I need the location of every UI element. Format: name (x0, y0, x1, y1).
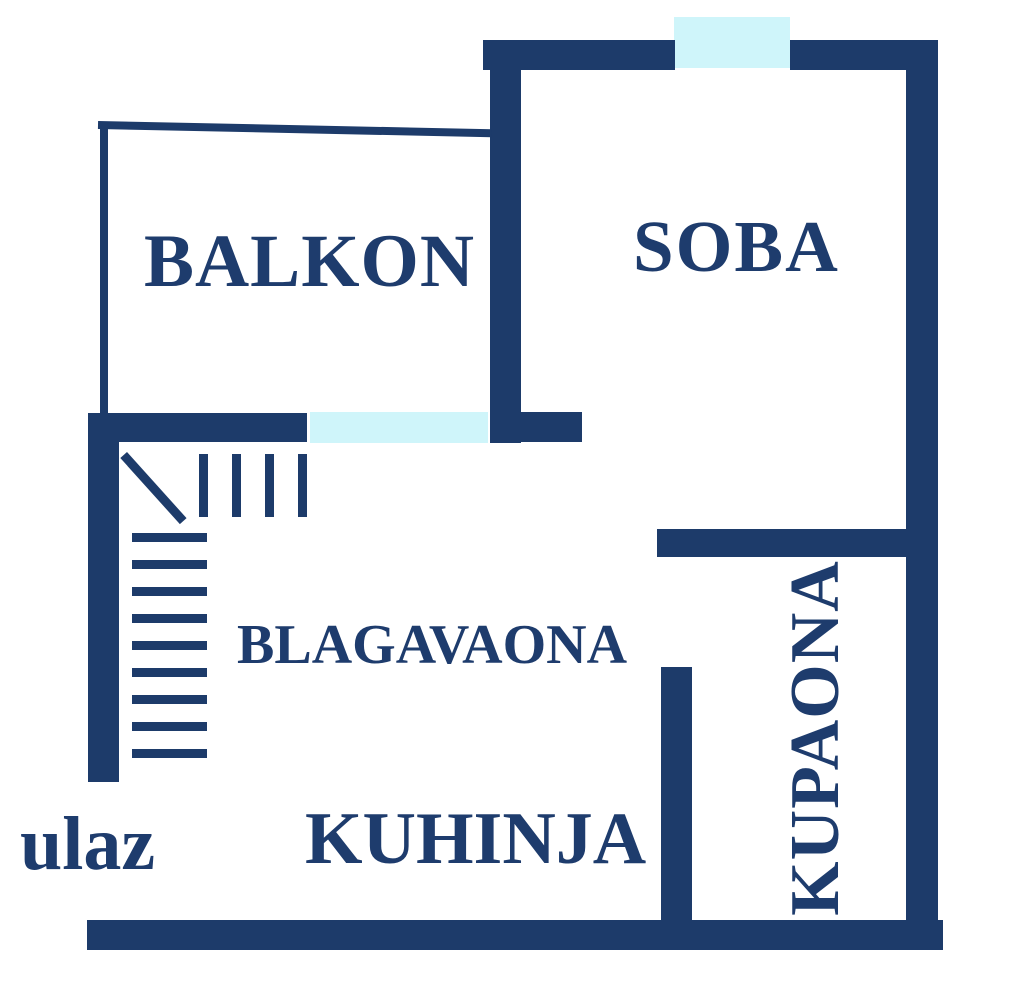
kuhinja-kupaona-wall (661, 667, 692, 950)
stair-tread (132, 533, 207, 542)
balkon-window (310, 412, 488, 443)
balkon-room-label: BALKON (144, 224, 475, 299)
stair-tread (132, 560, 207, 569)
stair-tread (132, 587, 207, 596)
entrance-label: ulaz (20, 806, 155, 882)
stair-tread (132, 695, 207, 704)
stair-tread (132, 749, 207, 758)
balkon-top-wall (98, 121, 492, 137)
kuhinja-room-label: KUHINJA (305, 802, 646, 876)
stair-baluster (298, 454, 307, 517)
soba-left-wall (490, 40, 521, 443)
stair-baluster (199, 454, 208, 517)
soba-door-stub-wall (521, 412, 582, 442)
stair-tread (132, 722, 207, 731)
floor-plan: BALKON SOBA BLAGAVAONA KUHINJA KUPAONA u… (0, 0, 1024, 983)
kupaona-room-label: KUPAONA (781, 550, 855, 926)
stair-baluster (265, 454, 274, 517)
soba-room-label: SOBA (633, 210, 840, 283)
stair-tread (132, 641, 207, 650)
stair-baluster (232, 454, 241, 517)
stair-tread (132, 614, 207, 623)
blagavaona-room-label: BLAGAVAONA (237, 617, 627, 673)
balkon-left-wall (100, 124, 108, 414)
outer-left-wall (88, 413, 119, 782)
stair-diagonal-line (120, 452, 186, 524)
stair-tread (132, 668, 207, 677)
soba-window (674, 17, 790, 68)
balkon-bottom-wall (88, 413, 307, 442)
outer-right-wall (906, 40, 938, 950)
